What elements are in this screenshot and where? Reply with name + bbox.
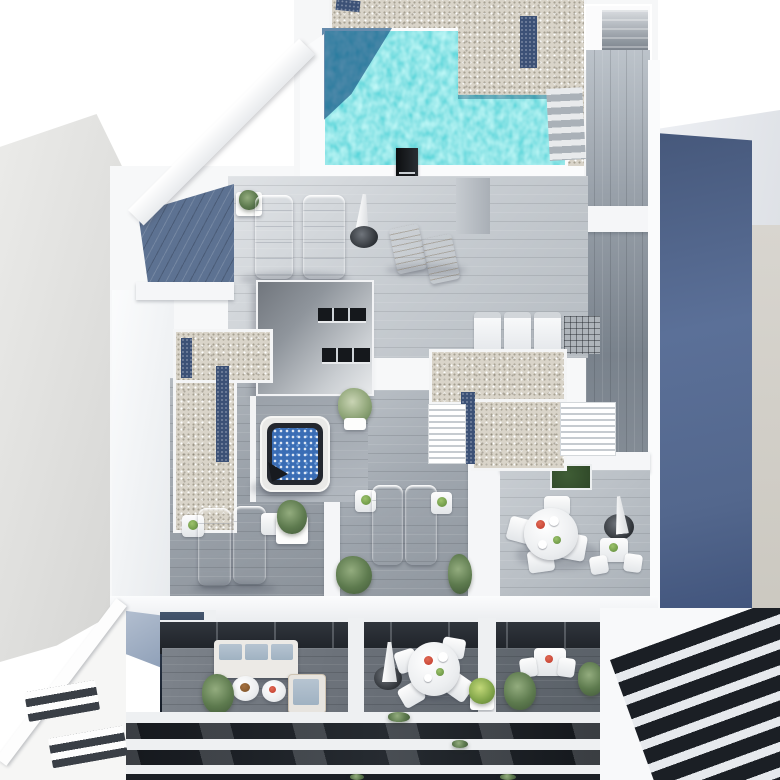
shrub-center-2	[448, 554, 472, 594]
coffee-table-1-tray	[240, 683, 250, 692]
pool-stairs	[546, 87, 586, 161]
roof-table-red-plate	[536, 520, 545, 529]
round-dining-table-balcony	[408, 642, 460, 696]
louver-unit-1	[560, 402, 616, 456]
plant-left-terrace	[277, 500, 307, 534]
skylight-slot-2	[322, 348, 370, 364]
bistro-balcony-item	[545, 655, 553, 663]
balcony-plant-2	[504, 672, 536, 710]
sofa-cushion-3	[271, 644, 293, 660]
sun-lounger-1	[255, 195, 293, 279]
bistro-roof-plant	[609, 543, 618, 552]
corner-building-bottom-right	[600, 608, 780, 780]
sofa-cushion-2	[245, 644, 268, 660]
facade-band-white-2	[110, 739, 658, 750]
roof-edge-strip-2	[520, 16, 537, 68]
facade-shrub-2	[452, 740, 468, 748]
facade-band-dark-1	[110, 723, 658, 739]
planter-strip-1	[181, 338, 192, 378]
roof-table-plate-2	[538, 540, 547, 549]
facade-shrub-5	[500, 774, 516, 780]
walkway-cross-wall	[584, 206, 654, 232]
bistro-balcony-chair-2	[557, 657, 576, 678]
balcony-plant-bright	[469, 678, 495, 704]
skylight-slot-1	[318, 308, 366, 323]
neighbor-right-edge	[750, 225, 780, 625]
side-table-3-plant	[361, 495, 371, 505]
louver-unit-2	[428, 404, 466, 464]
roof-table-plate-1	[549, 516, 559, 526]
facade-shrub-4	[350, 774, 364, 780]
balcony-table-red-plate	[424, 656, 433, 665]
gravel-planter-right-stem	[474, 402, 564, 468]
stairwell-skylight-structure	[256, 280, 374, 396]
sofa-cushion-1	[219, 644, 242, 660]
balcony-plant-1	[202, 674, 234, 714]
gravel-planter-right-bar	[432, 352, 564, 402]
side-table-4-plant	[437, 497, 447, 507]
facade-band-dark-2	[110, 750, 658, 765]
balcony-pier-1	[348, 618, 364, 714]
facade-band-white-1	[110, 712, 658, 723]
sun-lounger-3	[198, 508, 231, 586]
coffee-table-2-item	[269, 686, 276, 693]
lattice-box	[564, 316, 600, 354]
roof-table-green-plate	[553, 536, 561, 544]
rooftop-render	[0, 0, 780, 780]
bistro-chair-1	[589, 555, 610, 576]
parasol-upper-base	[350, 226, 378, 248]
shrub-center-1	[336, 556, 372, 594]
grey-wall-box	[456, 178, 490, 234]
side-table-1-plant	[188, 520, 198, 530]
facade-band-dark-3	[110, 774, 658, 780]
sun-lounger-5	[372, 485, 403, 565]
balcony-table-plate-1	[438, 652, 448, 662]
west-facade	[112, 290, 174, 602]
br-window-stripes	[610, 608, 780, 780]
facade-band-white-3	[110, 765, 658, 774]
planter-strip-2	[216, 366, 229, 462]
armchair-cushion	[293, 679, 319, 705]
sun-lounger-2	[303, 195, 345, 279]
balcony-table-plate-2	[424, 674, 432, 682]
balcony-table-green-plate	[436, 668, 444, 676]
flowering-plant-pot	[344, 418, 366, 430]
neighbor-building-right-wall	[652, 133, 752, 625]
facade-shrub-1	[388, 712, 410, 722]
bistro-chair-2	[623, 553, 643, 573]
nw-cross-wall	[136, 282, 234, 300]
